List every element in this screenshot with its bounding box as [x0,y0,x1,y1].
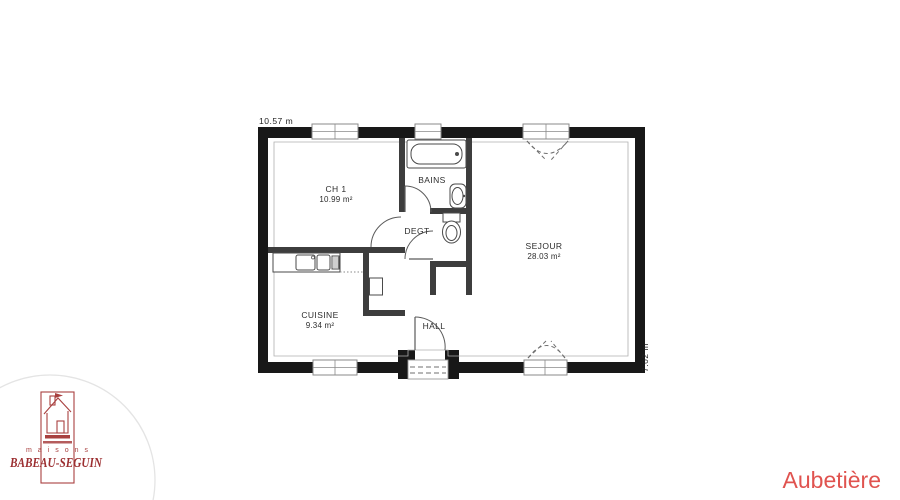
kitchen-sink-basin [296,255,315,270]
brand-name-text: BABEAU-SEGUIN [9,456,103,471]
svg-text:9.34 m²: 9.34 m² [306,321,335,330]
room-label-bains: BAINS [418,175,446,185]
kitchen-counter [273,253,363,272]
door-arc-ch1 [371,217,401,247]
watermark-circle [0,375,155,500]
room-label-hall: HALL [423,321,446,331]
floorplan: CH 1 10.99 m² BAINS DEGT SEJOUR 28.03 m²… [258,116,650,379]
floorplan-canvas: maisons BABEAU-SEGUIN Aubetière [0,0,900,500]
room-label-cuisine: CUISINE 9.34 m² [301,310,338,330]
svg-text:SEJOUR: SEJOUR [526,241,563,251]
room-label-sejour: SEJOUR 28.03 m² [526,241,563,261]
door-arc-bains [405,186,431,212]
water-heater [370,278,383,295]
toilet [443,213,461,243]
dimension-height-label: 7.02 m [640,343,650,372]
bath-sink [450,184,466,208]
room-label-degt: DEGT [404,226,429,236]
svg-text:10.99 m²: 10.99 m² [319,195,352,204]
svg-text:CH 1: CH 1 [326,184,347,194]
house-icon [43,393,72,444]
room-label-ch1: CH 1 10.99 m² [319,184,352,204]
porch-steps [408,360,448,379]
svg-text:CUISINE: CUISINE [301,310,338,320]
bathtub [407,140,466,168]
brand-logo: maisons BABEAU-SEGUIN [0,375,155,500]
floorplan-page: maisons BABEAU-SEGUIN Aubetière [0,0,900,500]
dimension-width-label: 10.57 m [259,116,293,126]
model-name-text: Aubetière [783,467,881,493]
brand-maisons-text: maisons [26,447,94,454]
svg-text:28.03 m²: 28.03 m² [527,252,560,261]
